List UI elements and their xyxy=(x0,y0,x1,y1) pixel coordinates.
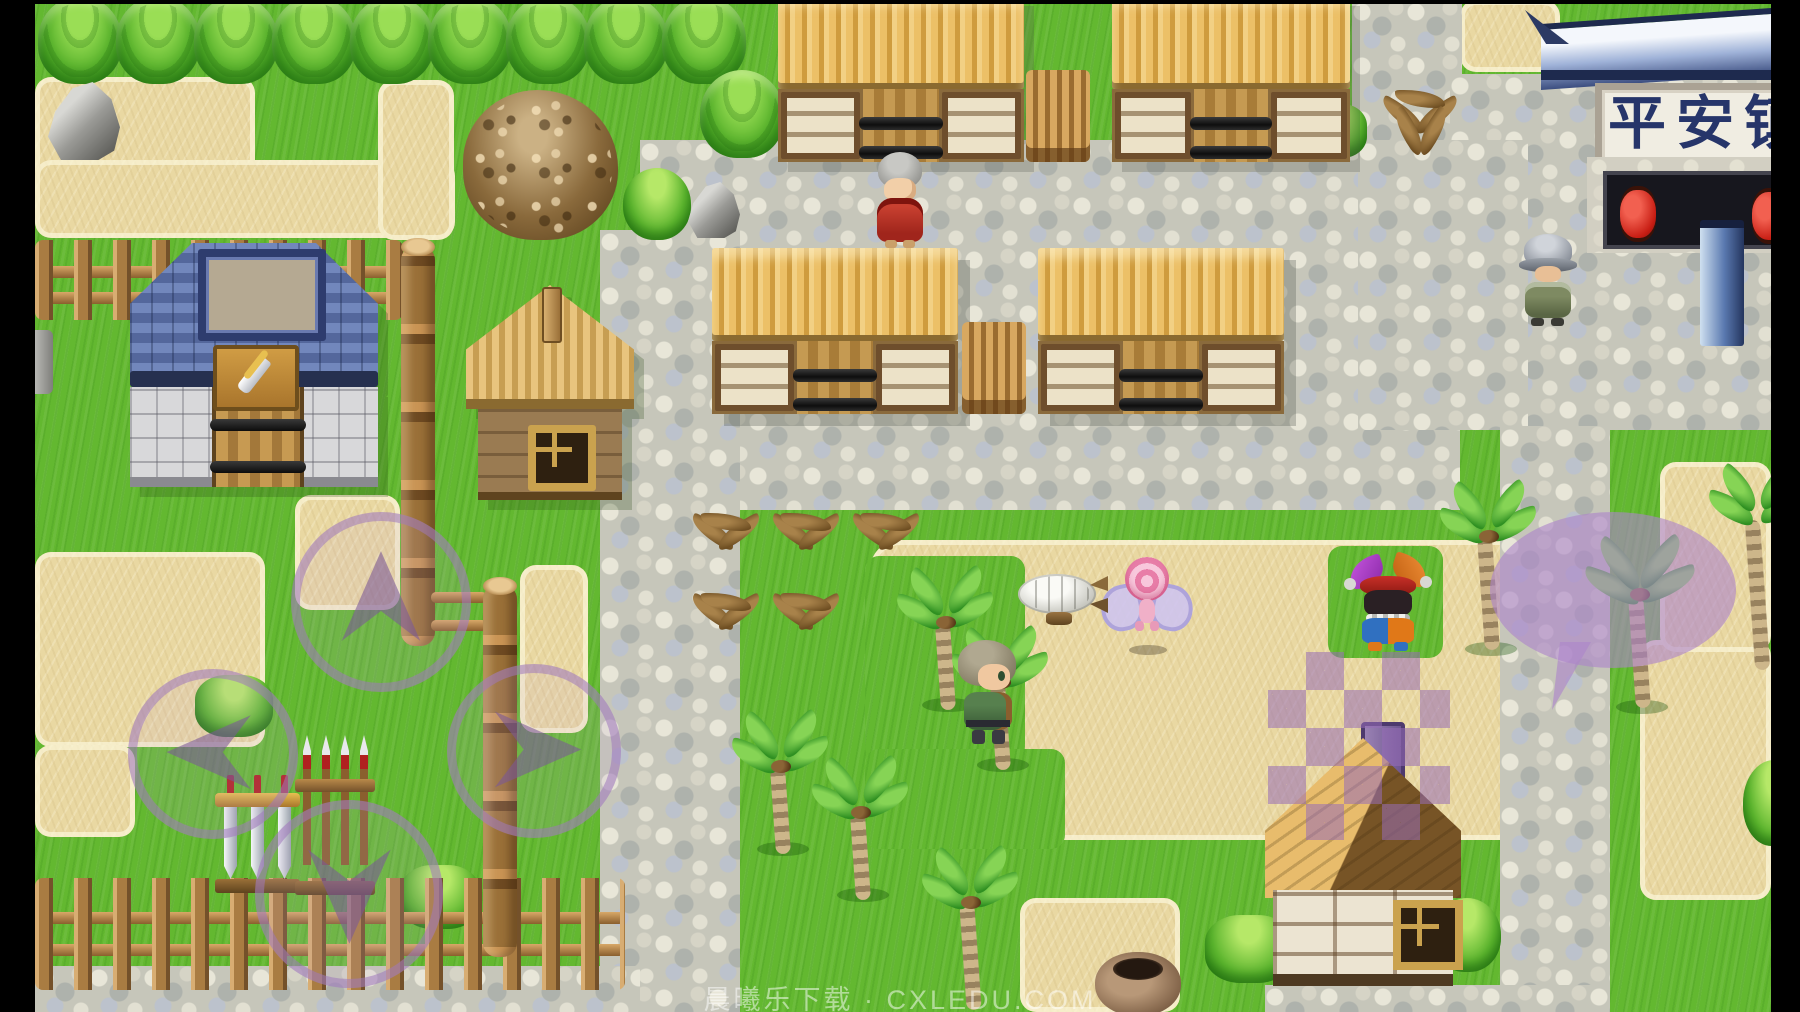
rack-top-bar xyxy=(295,779,375,792)
fairy-feet xyxy=(1135,621,1144,631)
guard-feet xyxy=(1531,318,1544,326)
elder-robe xyxy=(877,198,923,242)
palm-tree xyxy=(735,716,825,856)
hero-legs xyxy=(992,730,1005,744)
dried-fern xyxy=(690,505,762,567)
stone-lantern-fragment xyxy=(35,330,53,394)
door-bar xyxy=(210,461,306,473)
tree xyxy=(428,4,512,84)
jester-feet xyxy=(1394,642,1408,651)
wall-panel xyxy=(876,344,955,411)
jester-feet xyxy=(1368,642,1382,651)
shop-signboard xyxy=(198,249,326,341)
stall-wall xyxy=(712,341,958,414)
wall-panel xyxy=(1271,92,1347,159)
npc-jester xyxy=(1350,552,1426,652)
hero-legs xyxy=(972,730,985,744)
bubble-body xyxy=(1490,512,1736,668)
coconuts xyxy=(771,760,791,773)
stall-wall xyxy=(1112,89,1350,162)
gravel-mound xyxy=(463,90,618,240)
jester-body xyxy=(1362,618,1414,644)
weapon-shop xyxy=(130,243,378,487)
elder-feet xyxy=(903,240,915,248)
palm-tree xyxy=(815,762,905,902)
palm-trunk xyxy=(850,814,871,901)
house-window xyxy=(528,425,596,491)
fairy-shadow xyxy=(1129,645,1167,655)
wall-panel xyxy=(1202,344,1281,411)
door-bar xyxy=(1119,369,1204,382)
market-stall xyxy=(712,248,958,414)
right-arrow-icon xyxy=(483,700,586,800)
door-bar xyxy=(1190,146,1272,159)
fairy-feet xyxy=(1150,621,1159,631)
sand-path xyxy=(35,745,135,837)
door-bar xyxy=(1190,117,1272,130)
wall-panel xyxy=(781,92,860,159)
jester-bell xyxy=(1344,578,1356,590)
dpad-left-button[interactable] xyxy=(128,669,298,839)
tree xyxy=(350,4,434,84)
market-stall xyxy=(1112,4,1350,162)
gate-sign-text: 平安镇 xyxy=(1608,92,1771,154)
roof-ridge-beam xyxy=(542,287,562,343)
wall-panel xyxy=(1041,344,1120,411)
door-bar xyxy=(1119,398,1204,411)
tree xyxy=(116,4,200,84)
coconuts xyxy=(851,806,871,819)
dried-fern xyxy=(690,585,762,647)
door-bar xyxy=(210,419,306,431)
fairy-body xyxy=(1139,599,1155,623)
firewood-pile xyxy=(962,322,1026,414)
door-bar xyxy=(793,369,878,382)
left-arrow-icon xyxy=(163,704,263,801)
elder-feet xyxy=(885,240,897,248)
tree xyxy=(700,70,784,158)
tree xyxy=(272,4,356,84)
window-cross xyxy=(1401,924,1439,929)
tree xyxy=(38,4,122,84)
dpad-right-button[interactable] xyxy=(447,664,621,838)
dried-fern xyxy=(770,505,842,567)
airship xyxy=(1018,568,1110,632)
plank-window xyxy=(1393,900,1463,970)
hero-belt xyxy=(966,720,1010,727)
gate-pillar xyxy=(1700,220,1744,346)
red-lantern xyxy=(1620,190,1656,238)
dpad-down-button[interactable] xyxy=(255,800,443,988)
thatched-roof xyxy=(778,4,1024,89)
market-stall xyxy=(778,4,1024,162)
pot-mouth xyxy=(1113,958,1163,980)
hero-eye xyxy=(998,671,1005,681)
dpad-up-button[interactable] xyxy=(291,512,471,692)
sword-plaque xyxy=(213,345,299,411)
door-bar xyxy=(859,117,944,130)
sand-path xyxy=(378,80,454,240)
jester-bell xyxy=(1420,576,1432,588)
npc-town-guard xyxy=(1518,234,1578,326)
cobblestone-path xyxy=(1358,140,1528,430)
tree xyxy=(506,4,590,84)
gate-roof-edge xyxy=(1541,70,1771,80)
wall-panel xyxy=(942,92,1021,159)
speech-bubble-button[interactable] xyxy=(1490,512,1736,668)
stall-wall xyxy=(1038,341,1284,414)
thatched-roof xyxy=(1112,4,1350,89)
watermark: 晨曦乐下载 · CXLEDU.COM xyxy=(600,978,1200,1012)
up-arrow-icon xyxy=(329,547,433,654)
down-arrow-icon xyxy=(295,836,404,948)
market-stall xyxy=(1038,248,1284,414)
guard-face xyxy=(1535,266,1561,282)
diamond-transition-overlay xyxy=(1268,652,1450,840)
thatched-roof xyxy=(1038,248,1284,341)
tree xyxy=(584,4,668,84)
coconuts xyxy=(961,896,981,909)
game-viewport: 平安镇 xyxy=(35,4,1771,1012)
coconuts xyxy=(936,616,956,629)
stall-door xyxy=(797,341,874,414)
dried-fern xyxy=(1380,78,1464,176)
door-bar xyxy=(793,398,878,411)
town-gate: 平安镇 xyxy=(1525,4,1771,434)
firewood-pile xyxy=(1026,70,1090,162)
flower-fairy xyxy=(1103,555,1191,651)
fairy-rose-head xyxy=(1125,557,1169,601)
wall-panel xyxy=(1115,92,1191,159)
npc-elder-villager xyxy=(873,152,927,248)
wooden-house xyxy=(466,285,634,500)
guard-armor xyxy=(1525,282,1571,318)
player-hero xyxy=(948,638,1028,746)
hero-face xyxy=(978,664,1010,690)
palm-trunk xyxy=(1745,520,1770,671)
airship-seams xyxy=(1024,576,1090,612)
dried-fern xyxy=(850,505,922,567)
airship-gondola xyxy=(1046,612,1072,625)
tree xyxy=(194,4,278,84)
thatched-roof xyxy=(712,248,958,341)
dried-fern xyxy=(770,585,842,647)
stall-door xyxy=(1123,341,1200,414)
stall-door xyxy=(1194,89,1268,162)
window-cross xyxy=(536,447,572,452)
guard-feet xyxy=(1551,318,1564,326)
palm-trunk xyxy=(770,768,791,855)
bush xyxy=(623,168,691,240)
wall-panel xyxy=(715,344,794,411)
